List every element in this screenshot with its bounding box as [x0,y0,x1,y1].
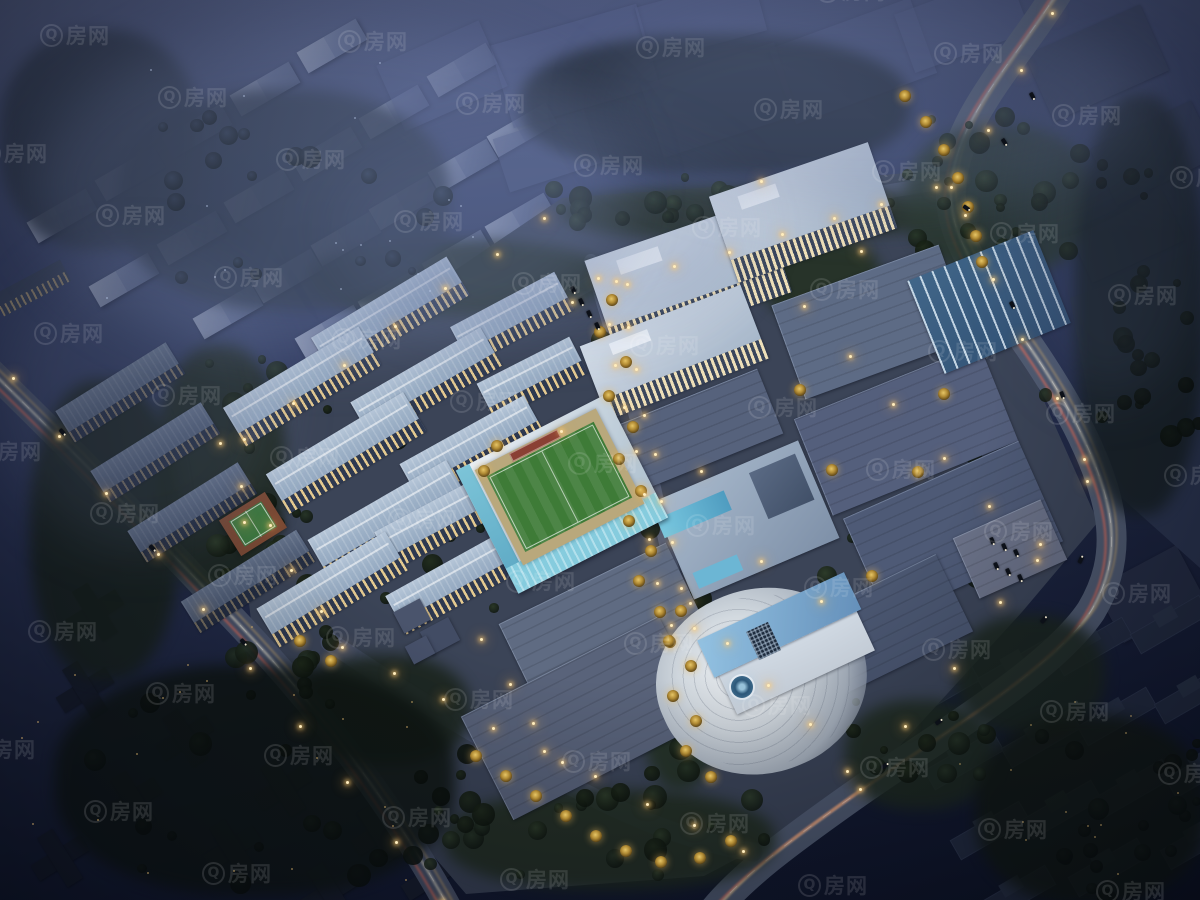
watermark: Q房网 [624,628,694,658]
watermark-text: 房网 [302,144,346,174]
watermark: Q房网 [748,392,818,422]
watermark-text: 房网 [4,138,48,168]
watermark-text: 房网 [1010,516,1054,546]
watermark-text: 房网 [1122,876,1166,900]
watermark-logo-icon: Q [0,142,1,165]
watermark-text: 房网 [836,274,880,304]
watermark-logo-icon: Q [810,278,833,301]
watermark: Q房网 [0,734,36,764]
watermark-text: 房网 [538,268,582,298]
watermark: Q房网 [208,560,278,590]
watermark-logo-icon: Q [1158,762,1181,785]
watermark: Q房网 [1158,758,1200,788]
watermark-logo-icon: Q [680,812,703,835]
watermark-logo-icon: Q [990,222,1013,245]
watermark-logo-icon: Q [388,508,411,531]
watermark-text: 房网 [1196,162,1200,192]
watermark: Q房网 [1096,876,1166,900]
watermark-text: 房网 [948,634,992,664]
watermark-text: 房网 [706,808,750,838]
watermark: Q房网 [990,218,1060,248]
watermark: Q房网 [568,448,638,478]
watermark-logo-icon: Q [872,160,895,183]
watermark: Q房网 [0,436,42,466]
watermark: Q房网 [456,88,526,118]
watermark-text: 房网 [178,380,222,410]
watermark-text: 房网 [526,864,570,894]
watermark-logo-icon: Q [450,390,473,413]
watermark-logo-icon: Q [394,210,417,233]
watermark-text: 房网 [1004,814,1048,844]
watermark-text: 房网 [234,560,278,590]
watermark-text: 房网 [656,330,700,360]
watermark-text: 房网 [768,690,812,720]
watermark-logo-icon: Q [562,750,585,773]
watermark-text: 房网 [1066,696,1110,726]
watermark: Q房网 [810,274,880,304]
watermark: Q房网 [1164,460,1200,490]
watermark-text: 房网 [1134,280,1178,310]
watermark-logo-icon: Q [866,458,889,481]
watermark-text: 房网 [476,386,520,416]
watermark-logo-icon: Q [1102,582,1125,605]
watermark-logo-icon: Q [748,396,771,419]
watermark-text: 房网 [594,448,638,478]
watermark-logo-icon: Q [934,42,957,65]
watermark-text: 房网 [1016,218,1060,248]
watermark: Q房网 [96,200,166,230]
watermark: Q房网 [338,26,408,56]
watermark-text: 房网 [408,802,452,832]
watermark: Q房网 [636,32,706,62]
watermark: Q房网 [574,150,644,180]
watermark-text: 房网 [0,436,42,466]
watermark-text: 房网 [60,318,104,348]
watermark-logo-icon: Q [816,0,839,3]
watermark: Q房网 [326,622,396,652]
watermark-text: 房网 [960,38,1004,68]
watermark-logo-icon: Q [984,520,1007,543]
watermark-logo-icon: Q [84,800,107,823]
watermark-logo-icon: Q [624,632,647,655]
watermark-text: 房网 [122,200,166,230]
watermark-logo-icon: Q [686,514,709,537]
watermark: Q房网 [90,498,160,528]
watermark: Q房网 [84,796,154,826]
watermark-logo-icon: Q [338,30,361,53]
watermark: Q房网 [692,212,762,242]
watermark-text: 房网 [184,82,228,112]
watermark-logo-icon: Q [382,806,405,829]
watermark: Q房网 [1052,100,1122,130]
watermark: Q房网 [394,206,464,236]
watermark-logo-icon: Q [630,334,653,357]
watermark-text: 房网 [228,858,272,888]
watermark-logo-icon: Q [978,818,1001,841]
watermark-logo-icon: Q [798,874,821,897]
watermark-text: 房网 [296,442,340,472]
watermark-text: 房网 [712,510,756,540]
watermark: Q房网 [686,510,756,540]
watermark-logo-icon: Q [34,322,57,345]
watermark-text: 房网 [172,678,216,708]
watermark: Q房网 [798,870,868,900]
watermark-logo-icon: Q [152,384,175,407]
watermark: Q房网 [562,746,632,776]
watermark-logo-icon: Q [568,452,591,475]
watermark: Q房网 [928,336,998,366]
watermark-logo-icon: Q [500,868,523,891]
watermark: Q房网 [984,516,1054,546]
watermark: Q房网 [1046,398,1116,428]
watermark-logo-icon: Q [692,216,715,239]
watermark-logo-icon: Q [28,620,51,643]
watermark-logo-icon: Q [146,682,169,705]
watermark-logo-icon: Q [456,92,479,115]
watermark-text: 房网 [532,566,576,596]
watermark-text: 房网 [954,336,998,366]
watermark-logo-icon: Q [1052,104,1075,127]
watermark-text: 房网 [420,206,464,236]
watermark-text: 房网 [470,684,514,714]
watermark-logo-icon: Q [208,564,231,587]
watermark-logo-icon: Q [332,328,355,351]
watermark-logo-icon: Q [270,446,293,469]
watermark-logo-icon: Q [506,570,529,593]
watermark-text: 房网 [1184,758,1200,788]
watermark: Q房网 [1102,578,1172,608]
watermark: Q房网 [872,156,942,186]
watermark: Q房网 [214,262,284,292]
watermark-logo-icon: Q [636,36,659,59]
watermark: Q房网 [860,752,930,782]
watermark-text: 房网 [358,324,402,354]
watermark-text: 房网 [830,572,874,602]
watermark-logo-icon: Q [1096,880,1119,900]
watermark: Q房网 [146,678,216,708]
watermark: Q房网 [444,684,514,714]
watermark-text: 房网 [1072,398,1116,428]
watermark-logo-icon: Q [214,266,237,289]
watermark: Q房网 [506,566,576,596]
watermark: Q房网 [500,864,570,894]
watermark: Q房网 [866,454,936,484]
watermark-text: 房网 [718,212,762,242]
watermark: Q房网 [40,20,110,50]
watermark-text: 房网 [780,94,824,124]
watermark-text: 房网 [886,752,930,782]
watermark: Q房网 [1108,280,1178,310]
watermark-text: 房网 [414,504,458,534]
watermark-logo-icon: Q [1164,464,1187,487]
watermark-logo-icon: Q [512,272,535,295]
watermark-logo-icon: Q [96,204,119,227]
watermark: Q房网 [276,144,346,174]
watermark: Q房网 [152,380,222,410]
watermark: Q房网 [1170,162,1200,192]
watermark: Q房网 [0,138,48,168]
watermark: Q房网 [450,386,520,416]
watermark-logo-icon: Q [928,340,951,363]
watermark-text: 房网 [824,870,868,900]
watermark-text: 房网 [892,454,936,484]
watermark: Q房网 [978,814,1048,844]
watermark-text: 房网 [0,734,36,764]
watermark: Q房网 [382,802,452,832]
watermark-logo-icon: Q [804,576,827,599]
aerial-night-rendering-industrial-park: Q房网Q房网Q房网Q房网Q房网Q房网Q房网Q房网Q房网Q房网Q房网Q房网Q房网Q… [0,0,1200,900]
watermark-logo-icon: Q [754,98,777,121]
watermark: Q房网 [680,808,750,838]
watermark-text: 房网 [116,498,160,528]
watermark-logo-icon: Q [276,148,299,171]
watermark-logo-icon: Q [1040,700,1063,723]
watermark: Q房网 [816,0,886,6]
watermark: Q房网 [742,690,812,720]
watermark: Q房网 [630,330,700,360]
watermark-logo-icon: Q [40,24,63,47]
watermark: Q房网 [1040,696,1110,726]
watermark-logo-icon: Q [326,626,349,649]
watermark-text: 房网 [842,0,886,6]
watermark: Q房网 [34,318,104,348]
watermark: Q房网 [202,858,272,888]
watermark-text: 房网 [54,616,98,646]
watermark-text: 房网 [482,88,526,118]
watermark-text: 房网 [1078,100,1122,130]
watermark: Q房网 [934,38,1004,68]
watermark-text: 房网 [1128,578,1172,608]
watermark-text: 房网 [364,26,408,56]
watermark-text: 房网 [588,746,632,776]
watermark: Q房网 [922,634,992,664]
watermark-logo-icon: Q [860,756,883,779]
watermark-logo-icon: Q [1108,284,1131,307]
watermark: Q房网 [512,268,582,298]
watermark-text: 房网 [898,156,942,186]
watermark-text: 房网 [66,20,110,50]
watermark-text: 房网 [600,150,644,180]
watermark-logo-icon: Q [574,154,597,177]
watermark: Q房网 [332,324,402,354]
watermark-logo-icon: Q [742,694,765,717]
watermark-logo-icon: Q [1046,402,1069,425]
watermark-logo-icon: Q [90,502,113,525]
watermark-logo-icon: Q [1170,166,1193,189]
watermark: Q房网 [804,572,874,602]
watermark: Q房网 [388,504,458,534]
watermark-text: 房网 [774,392,818,422]
watermark-layer: Q房网Q房网Q房网Q房网Q房网Q房网Q房网Q房网Q房网Q房网Q房网Q房网Q房网Q… [0,0,1200,900]
watermark: Q房网 [270,442,340,472]
watermark-logo-icon: Q [264,744,287,767]
watermark: Q房网 [158,82,228,112]
watermark-text: 房网 [110,796,154,826]
watermark: Q房网 [264,740,334,770]
watermark-text: 房网 [290,740,334,770]
watermark-text: 房网 [352,622,396,652]
watermark-text: 房网 [1190,460,1200,490]
watermark-logo-icon: Q [444,688,467,711]
watermark-text: 房网 [662,32,706,62]
watermark: Q房网 [28,616,98,646]
watermark-text: 房网 [650,628,694,658]
watermark: Q房网 [754,94,824,124]
watermark-logo-icon: Q [922,638,945,661]
watermark-logo-icon: Q [158,86,181,109]
watermark-text: 房网 [240,262,284,292]
watermark-logo-icon: Q [202,862,225,885]
